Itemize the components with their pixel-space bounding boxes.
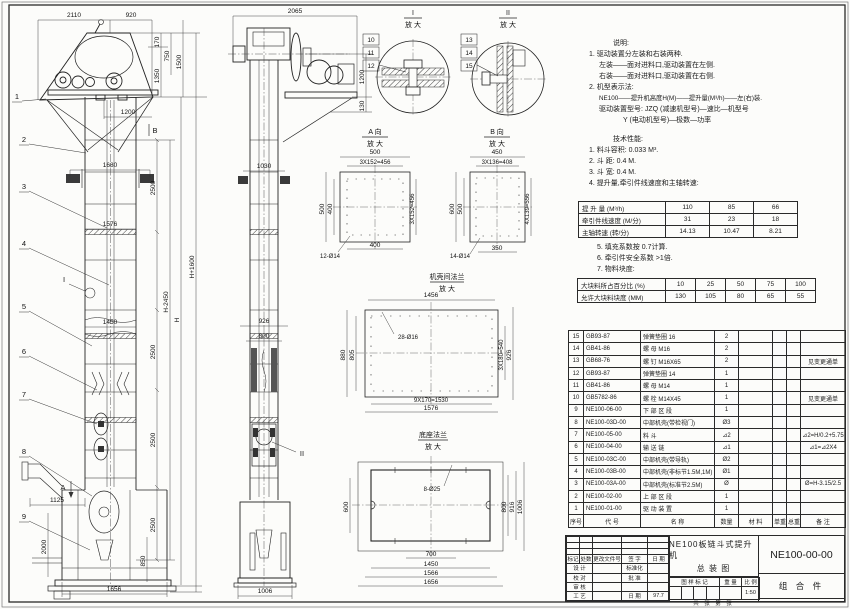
detail-I-title: I bbox=[412, 10, 414, 17]
dim-label: 1200 bbox=[121, 109, 136, 116]
part-code: NE100-02-00 bbox=[584, 490, 641, 502]
dim-label: 1656 bbox=[107, 586, 122, 593]
capacity-value: 66 bbox=[754, 202, 798, 214]
notes-heading: 说明: bbox=[613, 38, 843, 49]
stamp-header: 图 样 标 记 bbox=[670, 578, 720, 587]
parts-row: 15GB93-87弹簧垫圈 162 bbox=[569, 331, 846, 343]
tech-line: 5. 填充系数按 0.7计算. bbox=[597, 242, 843, 253]
notes-block: 说明: 1. 驱动装置分左装和右装两种. 左装——面对进料口,驱动装置在左侧. … bbox=[575, 38, 843, 126]
tech-line: 4. 提升量,牵引件线速度和主轴转速: bbox=[589, 178, 843, 189]
part-note bbox=[801, 343, 846, 355]
part-note bbox=[801, 490, 846, 502]
revision-header-row: 标记 处数 更改文件号 签 字 日 期 bbox=[567, 555, 670, 564]
detail-flange bbox=[347, 300, 513, 412]
capacity-value: 23 bbox=[710, 214, 754, 226]
part-code: GB93-87 bbox=[584, 331, 641, 343]
lump-value: 10 bbox=[666, 279, 696, 291]
part-no: 15 bbox=[569, 331, 584, 343]
parts-header-row: 序号 代 号 名 称 数量 材 料 单重 总重 备 注 bbox=[569, 515, 846, 527]
part-note bbox=[801, 404, 846, 416]
part-name: 驱 动 装 置 bbox=[641, 503, 715, 515]
role-label: 批 准 bbox=[622, 573, 648, 582]
table-row: 牵引件线速度 (M/分) 31 23 18 bbox=[579, 214, 798, 226]
balloon-3: 3 bbox=[22, 182, 26, 191]
balloon-10: 10 bbox=[367, 37, 375, 44]
drawing-title-line2: 总 装 图 bbox=[697, 563, 730, 574]
parts-row: 9NE100-06-00下 部 区 段1 bbox=[569, 404, 846, 416]
dim-label: 1500 bbox=[176, 54, 183, 69]
dim-label: 1680 bbox=[103, 162, 118, 169]
dim-label: H bbox=[174, 317, 181, 322]
note-line: 右装——面对进料口,驱动装置在右侧. bbox=[599, 71, 843, 82]
part-no: 7 bbox=[569, 429, 584, 441]
dim-label: 800 bbox=[501, 501, 508, 512]
detail-mark-II: II bbox=[300, 449, 304, 458]
dim-label: 500 bbox=[370, 149, 381, 156]
part-note bbox=[801, 453, 846, 465]
note-line: 1. 驱动装置分左装和右装两种. bbox=[589, 49, 843, 60]
part-qty: 2 bbox=[715, 331, 739, 343]
part-qty: 1 bbox=[715, 367, 739, 379]
part-qty: 1 bbox=[715, 392, 739, 404]
note-line: 左装——面对进料口,驱动装置在左侧. bbox=[599, 60, 843, 71]
part-note bbox=[801, 380, 846, 392]
dim-label: 3X152=456 bbox=[360, 160, 392, 166]
detail-A bbox=[326, 157, 417, 252]
part-note bbox=[801, 367, 846, 379]
dim-label: 750 bbox=[164, 50, 171, 61]
role-label bbox=[622, 582, 648, 591]
dim-label: 2000 bbox=[41, 539, 48, 554]
lump-label: 允许大块料块度 (MM) bbox=[578, 291, 666, 303]
detail-II-scale: 放 大 bbox=[500, 20, 516, 29]
capacity-value: 18 bbox=[754, 214, 798, 226]
detail-B-title: B 向 bbox=[490, 127, 504, 136]
dim-label: 805 bbox=[349, 349, 356, 360]
dim-label: 3X180=540 bbox=[499, 339, 505, 371]
dim-label: 916 bbox=[509, 501, 516, 512]
parts-header: 总重 bbox=[787, 515, 801, 527]
capacity-label: 牵引件线速度 (M/分) bbox=[579, 214, 666, 226]
part-note bbox=[801, 417, 846, 429]
role-row: 审 核 bbox=[567, 582, 670, 591]
dim-label: 170 bbox=[154, 36, 161, 47]
role-row: 校 对批 准 bbox=[567, 573, 670, 582]
table-row: 大块料所占百分比 (%) 10 25 50 75 100 bbox=[578, 279, 816, 291]
part-name: 中部机壳(标准节2.5M) bbox=[641, 478, 715, 490]
dim-label: 2500 bbox=[150, 180, 157, 195]
date-value: 97.7 bbox=[648, 591, 670, 600]
tech-line: 7. 物料块度: bbox=[597, 264, 843, 275]
detail-mark-I: I bbox=[63, 275, 65, 284]
balloon-4: 4 bbox=[22, 239, 26, 248]
balloon-7: 7 bbox=[22, 390, 26, 399]
part-qty: Ø2 bbox=[715, 453, 739, 465]
view-mark-B: B bbox=[152, 126, 157, 135]
title-block-center: NE100板链斗式提升机 总 装 图 图 样 标 记 重 量 比 例 1:50 … bbox=[669, 536, 759, 601]
part-qty: ⊿2 bbox=[715, 429, 739, 441]
drawing-title-line1: NE100板链斗式提升机 bbox=[669, 539, 758, 561]
parts-row: 1NE100-01-00驱 动 装 置1 bbox=[569, 503, 846, 515]
tech-line: 2. 斗 距: 0.4 M. bbox=[589, 156, 843, 167]
dim-label: 3X136=408 bbox=[482, 160, 514, 166]
part-name: 料 斗 bbox=[641, 429, 715, 441]
dim-label: H-2450 bbox=[163, 291, 170, 313]
view-mark-A: A bbox=[60, 483, 65, 492]
part-name: 中部机壳(带检视门) bbox=[641, 417, 715, 429]
part-name: 下 部 区 段 bbox=[641, 404, 715, 416]
capacity-value: 10.47 bbox=[710, 226, 754, 238]
part-name: 上 部 区 段 bbox=[641, 490, 715, 502]
part-qty: Ø1 bbox=[715, 466, 739, 478]
parts-row: 5NE100-03C-00中部机壳(带导轨)Ø2 bbox=[569, 453, 846, 465]
dim-label: 2065 bbox=[288, 8, 303, 15]
part-note bbox=[801, 466, 846, 478]
part-no: 6 bbox=[569, 441, 584, 453]
lump-value: 80 bbox=[726, 291, 756, 303]
dim-label: 1200 bbox=[359, 69, 366, 84]
role-label: 标准化 bbox=[622, 564, 648, 573]
title-block-right: NE100-00-00 组 合 件 bbox=[759, 536, 844, 601]
dim-label: 1006 bbox=[258, 588, 273, 595]
parts-header: 名 称 bbox=[641, 515, 715, 527]
dim-label: 1656 bbox=[424, 579, 439, 586]
dim-label: 920 bbox=[126, 12, 137, 19]
part-code: GB41-86 bbox=[584, 380, 641, 392]
part-name: 输 送 链 bbox=[641, 441, 715, 453]
dim-label: 1576 bbox=[424, 405, 439, 412]
note-line: 2. 机型表示法: bbox=[589, 82, 843, 93]
part-qty: Ø3 bbox=[715, 417, 739, 429]
detail-flange-scale: 放 大 bbox=[439, 284, 455, 293]
part-no: 14 bbox=[569, 343, 584, 355]
detail-base-title: 底座法兰 bbox=[419, 430, 447, 439]
rev-header: 日 期 bbox=[648, 555, 670, 564]
detail-B bbox=[456, 157, 532, 254]
parts-row: 3NE100-03A-00中部机壳(标准节2.5M)ØØ=H-3.15/2.5 bbox=[569, 478, 846, 490]
assembly-kind: 组 合 件 bbox=[759, 574, 844, 599]
dim-label: 800 bbox=[259, 333, 270, 340]
part-no: 13 bbox=[569, 355, 584, 367]
lump-value: 75 bbox=[756, 279, 786, 291]
hole-callout: 8-Ø25 bbox=[424, 487, 441, 493]
balloon-2: 2 bbox=[22, 135, 26, 144]
part-name: 中部机壳(带导轨) bbox=[641, 453, 715, 465]
detail-flange-title: 机壳间法兰 bbox=[430, 272, 465, 281]
table-row: 主轴转速 (转/分) 14.13 10.47 8.21 bbox=[579, 226, 798, 238]
dim-label: 1350 bbox=[154, 68, 161, 83]
dim-label: 350 bbox=[492, 245, 503, 252]
part-no: 2 bbox=[569, 490, 584, 502]
part-code: NE100-03A-00 bbox=[584, 478, 641, 490]
dim-label: 1030 bbox=[257, 163, 272, 170]
stamp-header: 比 例 bbox=[742, 578, 760, 587]
dim-label: 1125 bbox=[50, 497, 64, 504]
part-code: NE100-03D-00 bbox=[584, 417, 641, 429]
lump-table: 大块料所占百分比 (%) 10 25 50 75 100 允许大块料块度 (MM… bbox=[577, 278, 816, 303]
lump-value: 130 bbox=[666, 291, 696, 303]
note-line: NE100——提升机高度H(M)——提升量(M³/h)——左(右)装. bbox=[599, 93, 843, 104]
lump-value: 65 bbox=[756, 291, 786, 303]
part-code: GB68-76 bbox=[584, 355, 641, 367]
lump-value: 105 bbox=[696, 291, 726, 303]
part-note: ⊿1=⊿2X4 bbox=[801, 441, 846, 453]
part-no: 12 bbox=[569, 367, 584, 379]
stamp-header-row: 图 样 标 记 重 量 比 例 bbox=[670, 578, 760, 587]
parts-header: 代 号 bbox=[584, 515, 641, 527]
lump-value: 55 bbox=[786, 291, 816, 303]
parts-header: 材 料 bbox=[739, 515, 773, 527]
parts-row: 8NE100-03D-00中部机壳(带检视门)Ø3 bbox=[569, 417, 846, 429]
part-no: 9 bbox=[569, 404, 584, 416]
parts-header: 单重 bbox=[773, 515, 787, 527]
detail-A-scale: 放 大 bbox=[367, 139, 383, 148]
dim-label: 850 bbox=[140, 555, 147, 566]
part-note bbox=[801, 331, 846, 343]
part-name: 螺 母 M16 bbox=[641, 343, 715, 355]
tech-line: 1. 料斗容积: 0.033 M³. bbox=[589, 145, 843, 156]
detail-A-title: A 向 bbox=[368, 127, 381, 136]
part-no: 11 bbox=[569, 380, 584, 392]
detail-II bbox=[461, 34, 546, 117]
role-label: 日 期 bbox=[622, 591, 648, 600]
dim-label: 3X152=456 bbox=[410, 193, 416, 225]
tech-block: 技术性能: 1. 料斗容积: 0.033 M³. 2. 斗 距: 0.4 M. … bbox=[575, 134, 843, 189]
title-block-left: 标记 处数 更改文件号 签 字 日 期 设 计标准化 校 对批 准 审 核 工 … bbox=[566, 536, 669, 601]
dim-label: 2110 bbox=[67, 12, 81, 19]
balloon-12: 12 bbox=[367, 63, 375, 70]
part-code: GB5782-86 bbox=[584, 392, 641, 404]
parts-header: 备 注 bbox=[801, 515, 846, 527]
dim-label: 400 bbox=[370, 242, 381, 249]
dim-label: 1566 bbox=[424, 570, 439, 577]
part-no: 4 bbox=[569, 466, 584, 478]
lump-label: 大块料所占百分比 (%) bbox=[578, 279, 666, 291]
dim-label: 2500 bbox=[150, 432, 157, 447]
dim-label: 700 bbox=[426, 551, 437, 558]
detail-base-scale: 放 大 bbox=[425, 442, 441, 451]
part-code: NE100-04-00 bbox=[584, 441, 641, 453]
part-name: 螺 栓 M14X45 bbox=[641, 392, 715, 404]
part-no: 3 bbox=[569, 478, 584, 490]
part-no: 1 bbox=[569, 503, 584, 515]
lump-value: 25 bbox=[696, 279, 726, 291]
detail-B-scale: 放 大 bbox=[489, 139, 505, 148]
part-code: GB93-87 bbox=[584, 367, 641, 379]
capacity-table: 提 升 量 (M³/h) 110 85 66 牵引件线速度 (M/分) 31 2… bbox=[578, 201, 798, 238]
parts-row: 6NE100-04-00输 送 链⊿1⊿1=⊿2X4 bbox=[569, 441, 846, 453]
part-code: NE100-03C-00 bbox=[584, 453, 641, 465]
part-code: NE100-05-00 bbox=[584, 429, 641, 441]
part-note: Ø=H-3.15/2.5 bbox=[801, 478, 846, 490]
part-qty: 1 bbox=[715, 380, 739, 392]
hole-callout: 28-Ø16 bbox=[398, 335, 419, 341]
part-code: NE100-03B-00 bbox=[584, 466, 641, 478]
hole-callout: 14-Ø14 bbox=[450, 254, 471, 260]
dim-label: 9X170=1530 bbox=[414, 398, 449, 404]
dim-label: 500 bbox=[457, 203, 464, 214]
table-row: 允许大块料块度 (MM) 130 105 80 65 55 bbox=[578, 291, 816, 303]
parts-row: 2NE100-02-00上 部 区 段1 bbox=[569, 490, 846, 502]
role-label: 设 计 bbox=[567, 564, 593, 573]
part-qty: 2 bbox=[715, 355, 739, 367]
drawing-sheet: 2110 920 170 750 1350 1500 1200 1680 250… bbox=[0, 0, 850, 609]
dim-label: 600 bbox=[449, 203, 456, 214]
dim-label: 1006 bbox=[517, 499, 524, 514]
dim-label: 1456 bbox=[424, 292, 439, 299]
tech-line: 3. 斗 宽: 0.4 M. bbox=[589, 167, 843, 178]
part-note: 见变更通单 bbox=[801, 355, 846, 367]
parts-row: 14GB41-86螺 母 M162 bbox=[569, 343, 846, 355]
balloon-9: 9 bbox=[22, 512, 26, 521]
capacity-label: 主轴转速 (转/分) bbox=[579, 226, 666, 238]
parts-row: 12GB93-87弹簧垫圈 141 bbox=[569, 367, 846, 379]
part-no: 10 bbox=[569, 392, 584, 404]
parts-header: 序号 bbox=[569, 515, 584, 527]
part-qty: 2 bbox=[715, 343, 739, 355]
scale-value: 1:50 bbox=[742, 587, 760, 600]
hole-callout: 12-Ø14 bbox=[320, 254, 341, 260]
rev-header: 标记 bbox=[567, 555, 580, 564]
wall-bracket-left bbox=[66, 174, 80, 183]
parts-row: 7NE100-05-00料 斗⊿2⊿2=H/0.2+5.75 bbox=[569, 429, 846, 441]
dim-label: 600 bbox=[343, 501, 350, 512]
dim-label: 926 bbox=[259, 318, 270, 325]
dim-label: H+1600 bbox=[189, 255, 196, 278]
capacity-label: 提 升 量 (M³/h) bbox=[579, 202, 666, 214]
part-qty: 1 bbox=[715, 503, 739, 515]
title-block: 标记 处数 更改文件号 签 字 日 期 设 计标准化 校 对批 准 审 核 工 … bbox=[565, 535, 845, 602]
dim-label: 500 bbox=[319, 203, 326, 214]
dim-label: 400 bbox=[327, 203, 334, 214]
part-code: GB41-86 bbox=[584, 343, 641, 355]
rev-header: 签 字 bbox=[622, 555, 648, 564]
parts-row: 11GB41-86螺 母 M141 bbox=[569, 380, 846, 392]
part-qty: 1 bbox=[715, 490, 739, 502]
stamp-header: 重 量 bbox=[720, 578, 742, 587]
tech-heading: 技术性能: bbox=[613, 134, 843, 145]
note-line: Y (电动机型号)—极数—功率 bbox=[623, 115, 843, 126]
part-no: 5 bbox=[569, 453, 584, 465]
dim-label: 1450 bbox=[424, 561, 439, 568]
part-note: 见变更通单 bbox=[801, 392, 846, 404]
capacity-value: 110 bbox=[666, 202, 710, 214]
role-row: 设 计标准化 bbox=[567, 564, 670, 573]
dim-label: 2500 bbox=[150, 517, 157, 532]
dim-label: 4X139=556 bbox=[525, 193, 531, 225]
note-line: 驱动装置型号: JZQ (减速机型号)—速比—机型号 bbox=[599, 104, 843, 115]
balloon-8: 8 bbox=[22, 447, 26, 456]
parts-header: 数量 bbox=[715, 515, 739, 527]
dim-label: 1450 bbox=[103, 319, 118, 326]
role-label: 工 艺 bbox=[567, 591, 593, 600]
part-qty: 1 bbox=[715, 404, 739, 416]
detail-I-scale: 放 大 bbox=[405, 20, 421, 29]
capacity-value: 31 bbox=[666, 214, 710, 226]
lump-value: 100 bbox=[786, 279, 816, 291]
parts-row: 13GB68-76螺 钉 M16X652见变更通单 bbox=[569, 355, 846, 367]
capacity-value: 8.21 bbox=[754, 226, 798, 238]
balloon-1: 1 bbox=[15, 92, 19, 101]
balloon-14: 14 bbox=[465, 50, 473, 57]
part-name: 螺 母 M14 bbox=[641, 380, 715, 392]
table-row: 提 升 量 (M³/h) 110 85 66 bbox=[579, 202, 798, 214]
detail-I bbox=[363, 34, 451, 115]
role-row: 工 艺日 期97.7 bbox=[567, 591, 670, 600]
part-code: NE100-06-00 bbox=[584, 404, 641, 416]
part-qty: ⊿1 bbox=[715, 441, 739, 453]
rev-header: 更改文件号 bbox=[593, 555, 622, 564]
tech-block-2: 5. 填充系数按 0.7计算. 6. 牵引件安全系数 >1倍. 7. 物料块度: bbox=[575, 242, 843, 275]
dim-label: 880 bbox=[340, 349, 347, 360]
dim-label: 2500 bbox=[150, 344, 157, 359]
part-no: 8 bbox=[569, 417, 584, 429]
balloon-6: 6 bbox=[22, 347, 26, 356]
sheet-count: 共 张 第 张 bbox=[669, 600, 758, 605]
detail-II-title: II bbox=[506, 10, 510, 17]
dim-label: 130 bbox=[359, 100, 366, 111]
rev-header: 处数 bbox=[580, 555, 593, 564]
balloon-11: 11 bbox=[368, 50, 375, 57]
part-code: NE100-01-00 bbox=[584, 503, 641, 515]
capacity-value: 14.13 bbox=[666, 226, 710, 238]
front-view bbox=[22, 20, 176, 600]
tech-line: 6. 牵引件安全系数 >1倍. bbox=[597, 253, 843, 264]
parts-list: 15GB93-87弹簧垫圈 162 14GB41-86螺 母 M162 13GB… bbox=[568, 330, 846, 528]
side-view-dims bbox=[233, 16, 372, 599]
parts-row: 4NE100-03B-00中部机壳(非标节1.5M,1M)Ø1 bbox=[569, 466, 846, 478]
part-qty: Ø bbox=[715, 478, 739, 490]
lump-value: 50 bbox=[726, 279, 756, 291]
capacity-value: 85 bbox=[710, 202, 754, 214]
balloon-15: 15 bbox=[465, 63, 473, 70]
role-label: 审 核 bbox=[567, 582, 593, 591]
dim-label: 926 bbox=[506, 349, 513, 360]
part-name: 螺 钉 M16X65 bbox=[641, 355, 715, 367]
drawing-number: NE100-00-00 bbox=[759, 536, 844, 574]
part-note: ⊿2=H/0.2+5.75 bbox=[801, 429, 846, 441]
part-name: 中部机壳(非标节1.5M,1M) bbox=[641, 466, 715, 478]
dim-label: 450 bbox=[492, 149, 503, 156]
balloon-5: 5 bbox=[22, 302, 26, 311]
part-name: 弹簧垫圈 16 bbox=[641, 331, 715, 343]
balloon-13: 13 bbox=[465, 37, 473, 44]
role-label: 校 对 bbox=[567, 573, 593, 582]
parts-row: 10GB5782-86螺 栓 M14X451见变更通单 bbox=[569, 392, 846, 404]
part-note bbox=[801, 503, 846, 515]
part-name: 弹簧垫圈 14 bbox=[641, 367, 715, 379]
